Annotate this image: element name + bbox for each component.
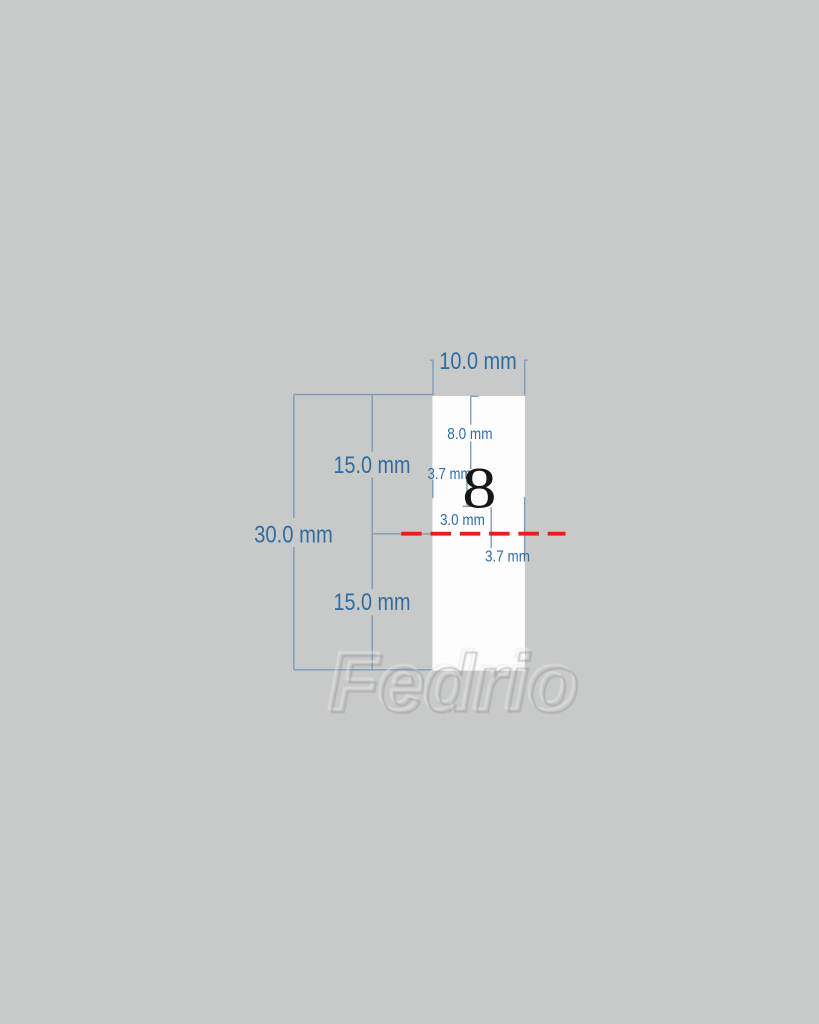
svg-text:8.0 mm: 8.0 mm bbox=[447, 426, 492, 443]
svg-text:30.0 mm: 30.0 mm bbox=[254, 522, 333, 549]
svg-text:Fedrio: Fedrio bbox=[331, 639, 580, 730]
svg-text:10.0 mm: 10.0 mm bbox=[439, 348, 517, 375]
svg-text:3.0 mm: 3.0 mm bbox=[440, 512, 485, 529]
svg-text:15.0 mm: 15.0 mm bbox=[334, 452, 411, 479]
svg-text:15.0 mm: 15.0 mm bbox=[334, 589, 411, 616]
svg-text:3.7 mm: 3.7 mm bbox=[485, 549, 530, 566]
